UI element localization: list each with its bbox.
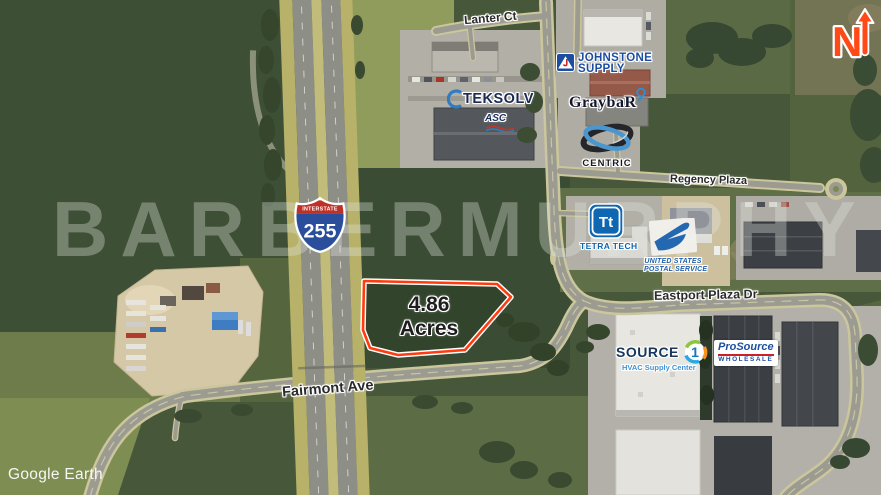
teksolv-name: TEKSOLV bbox=[463, 91, 534, 107]
north-arrow-icon: N bbox=[831, 6, 877, 62]
prosource-logo: ProSource WHOLESALE bbox=[714, 340, 778, 366]
shield-route-number: 255 bbox=[304, 221, 337, 243]
interstate-255-shield: INTERSTATE 255 bbox=[294, 196, 346, 254]
parcel-area-value: 4.86 bbox=[390, 293, 468, 317]
aerial-map: BARBERMURPHY 4.86 Acres INTERSTATE 255 L… bbox=[0, 0, 881, 495]
prosource-name: ProSource bbox=[718, 342, 774, 353]
johnstone-supply-name-line1: JOHNSTONE bbox=[578, 53, 652, 64]
source1-number: 1 bbox=[691, 344, 699, 360]
tetra-tech-name: TETRA TECH bbox=[580, 241, 632, 251]
asc-wave-icon bbox=[485, 125, 515, 132]
parcel-boundary bbox=[0, 0, 881, 495]
road-label-eastport-plaza-dr: Eastport Plaza Dr bbox=[654, 287, 758, 303]
source1-sub: HVAC Supply Center bbox=[622, 363, 709, 372]
usps-logo: UNITED STATES POSTAL SERVICE bbox=[644, 218, 702, 273]
centric-logo: CENTRIC bbox=[580, 118, 634, 169]
shield-interstate-text: INTERSTATE bbox=[302, 206, 338, 212]
google-earth-credit: Google Earth bbox=[8, 466, 103, 484]
tetra-tech-icon: Tt bbox=[588, 203, 624, 239]
usps-name-line2: POSTAL SERVICE bbox=[644, 266, 702, 274]
teksolv-asc-sub: ASC bbox=[485, 113, 506, 124]
tetra-tech-logo: Tt TETRA TECH bbox=[580, 203, 632, 251]
source1-name: SOURCE bbox=[616, 344, 679, 360]
johnstone-supply-name-line2: SUPPLY bbox=[578, 64, 652, 75]
teksolv-logo: TEKSOLV ASC bbox=[447, 89, 534, 132]
tetra-tech-abbr: Tt bbox=[599, 214, 613, 231]
teksolv-swoosh-icon bbox=[447, 89, 463, 109]
usps-eagle-icon bbox=[649, 218, 697, 258]
johnstone-supply-icon bbox=[556, 53, 575, 72]
road-label-regency-plaza: Regency Plaza bbox=[670, 173, 747, 187]
centric-rings-icon bbox=[580, 118, 634, 160]
graybar-name: GraybaR bbox=[569, 94, 637, 111]
usps-name-line1: UNITED STATES bbox=[644, 258, 702, 266]
prosource-sub: WHOLESALE bbox=[718, 357, 774, 364]
johnstone-supply-logo: JOHNSTONE SUPPLY bbox=[556, 53, 652, 74]
source1-logo: SOURCE 1 HVAC Supply Center bbox=[616, 338, 709, 372]
parcel-area-unit: Acres bbox=[390, 317, 468, 341]
graybar-logo: GraybaR bbox=[569, 94, 637, 112]
parcel-area-label: 4.86 Acres bbox=[390, 293, 468, 341]
source1-circle-icon: 1 bbox=[681, 338, 709, 366]
north-label: N bbox=[832, 18, 862, 62]
graybar-swirl-icon bbox=[635, 87, 647, 102]
centric-name: CENTRIC bbox=[580, 158, 634, 169]
